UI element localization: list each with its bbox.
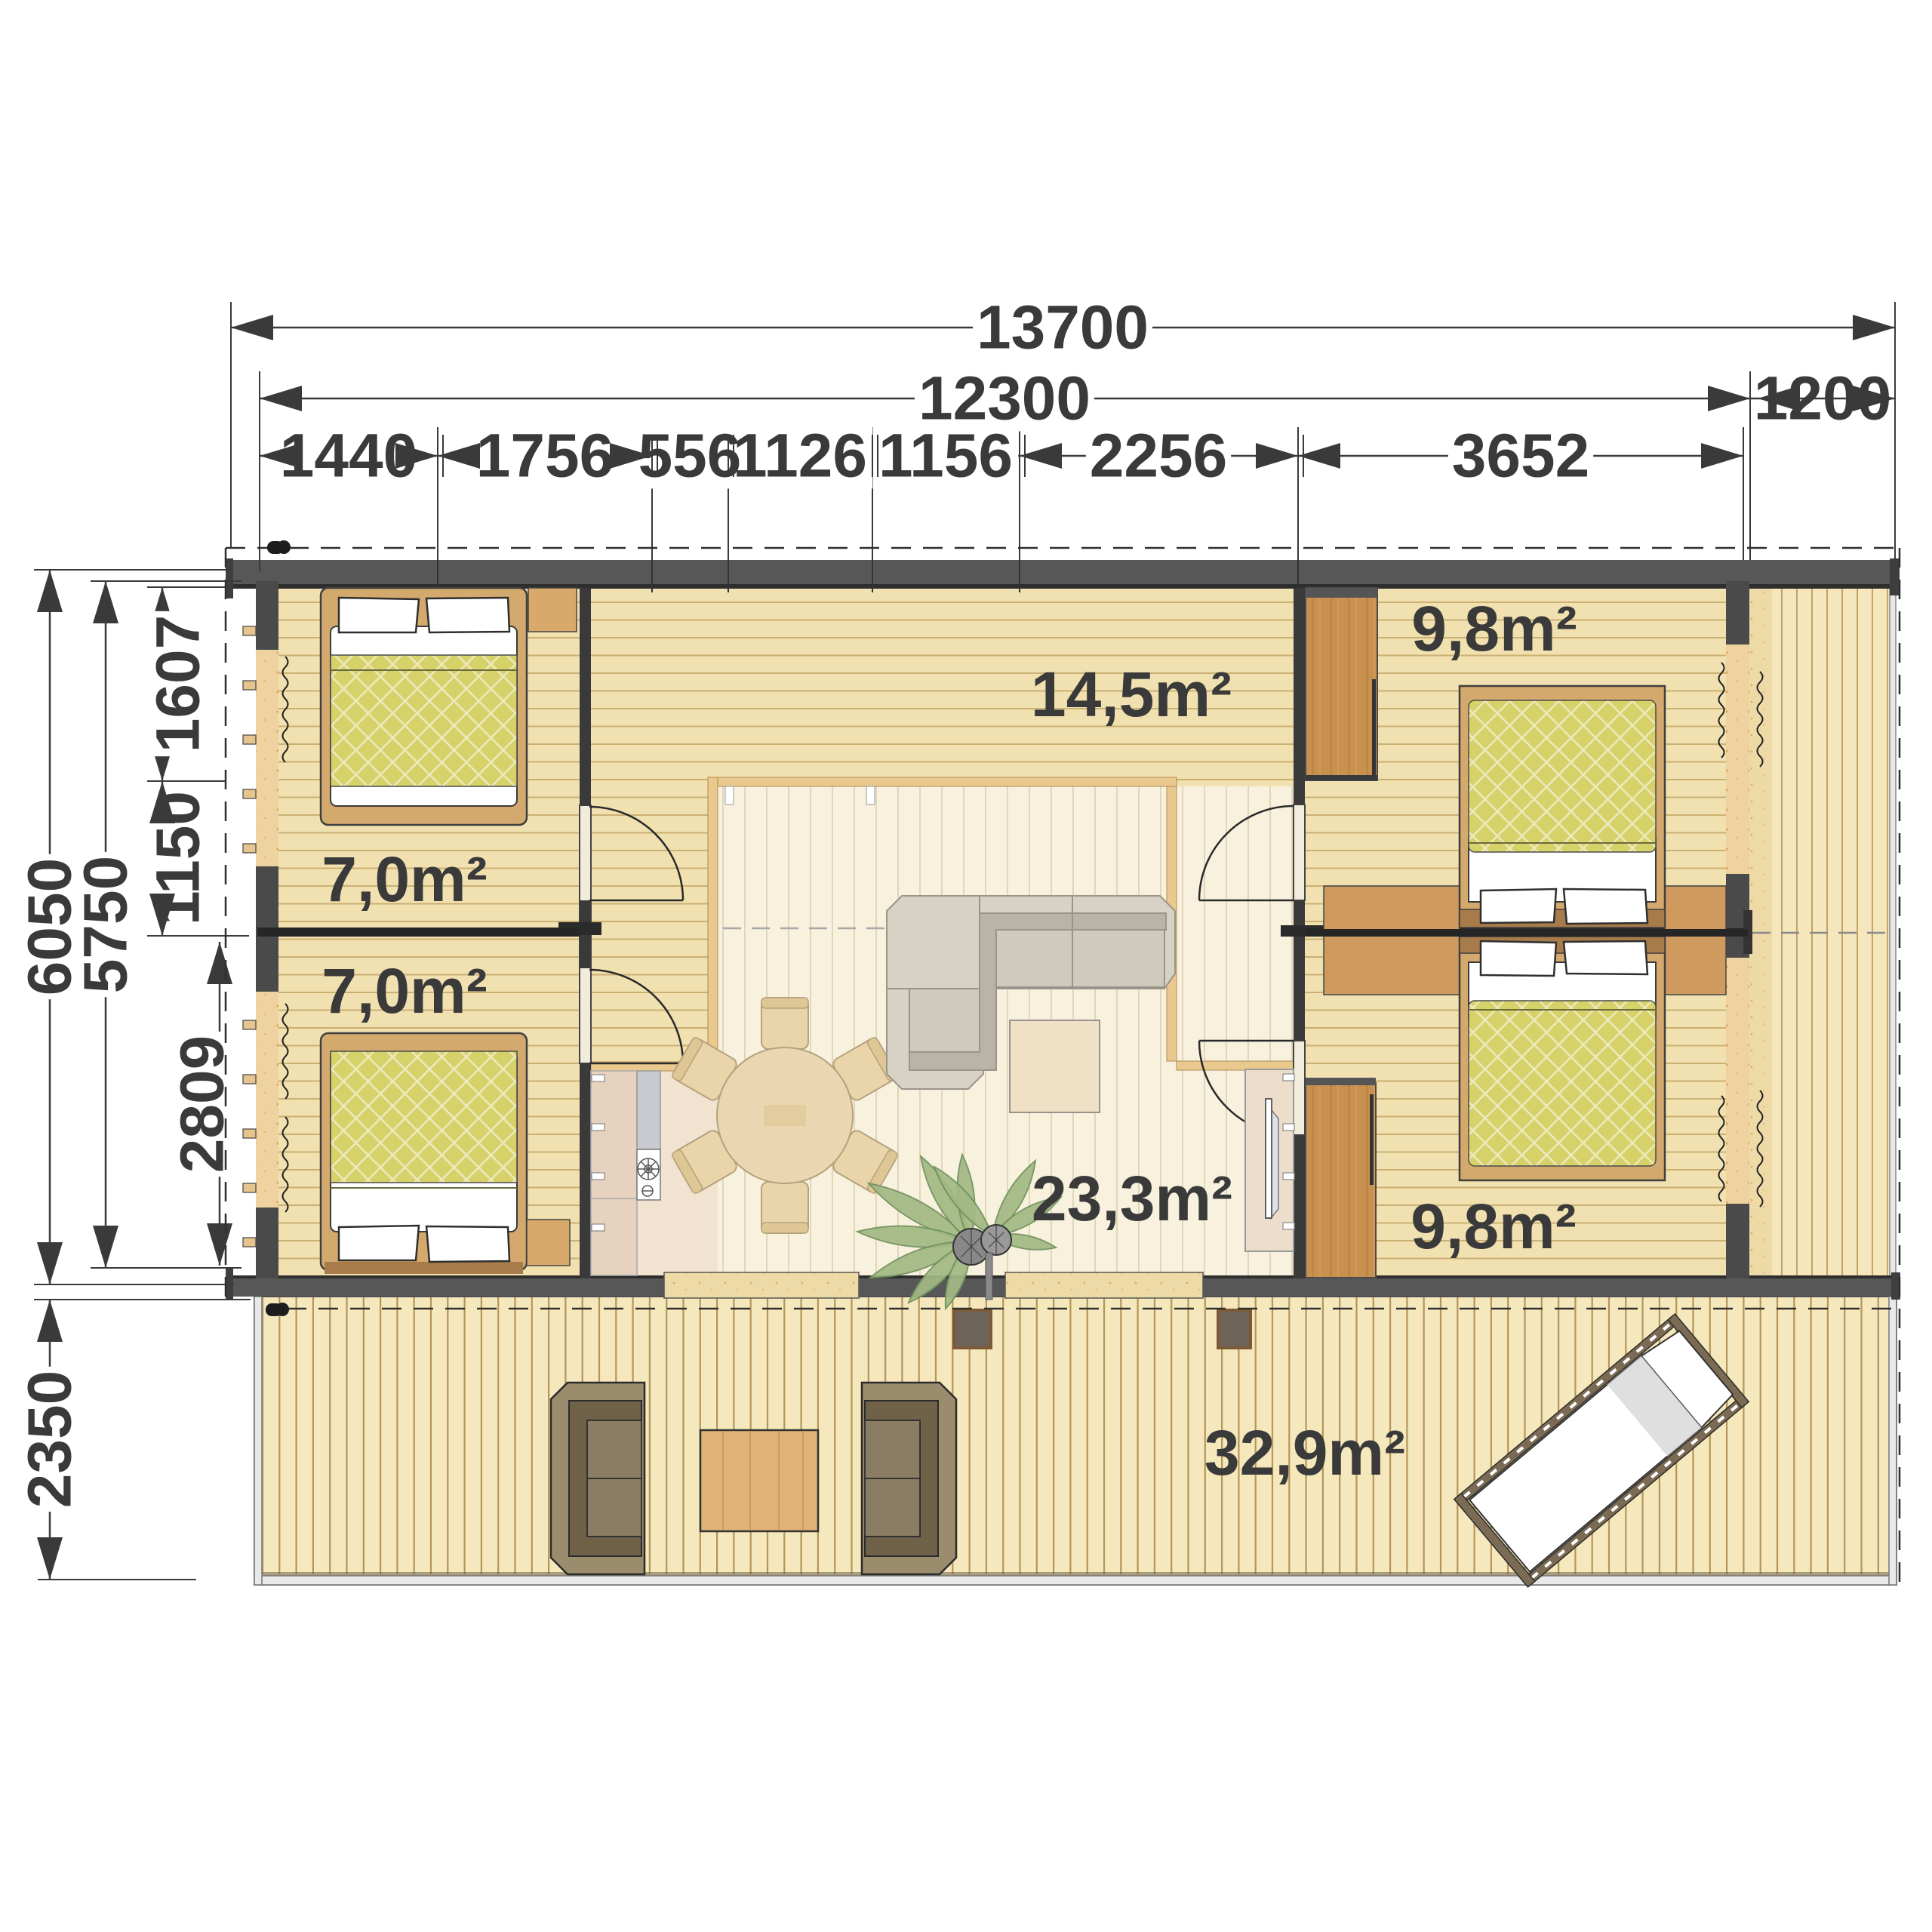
svg-text:1156: 1156 bbox=[878, 422, 1013, 491]
svg-text:1440: 1440 bbox=[280, 422, 417, 491]
svg-text:32,9m²: 32,9m² bbox=[1204, 1417, 1405, 1488]
svg-text:2350: 2350 bbox=[16, 1371, 85, 1508]
svg-text:9,8m²: 9,8m² bbox=[1411, 593, 1577, 664]
svg-text:1607: 1607 bbox=[144, 615, 213, 752]
svg-text:3652: 3652 bbox=[1452, 422, 1589, 491]
svg-text:9,8m²: 9,8m² bbox=[1411, 1191, 1576, 1262]
svg-text:14,5m²: 14,5m² bbox=[1031, 659, 1232, 730]
svg-text:1126: 1126 bbox=[733, 422, 867, 491]
svg-text:1756: 1756 bbox=[476, 422, 614, 491]
svg-text:556: 556 bbox=[638, 422, 742, 491]
svg-text:7,0m²: 7,0m² bbox=[321, 844, 487, 915]
svg-text:5750: 5750 bbox=[72, 856, 140, 993]
svg-text:7,0m²: 7,0m² bbox=[321, 955, 487, 1026]
svg-text:2256: 2256 bbox=[1090, 422, 1227, 491]
svg-text:13700: 13700 bbox=[977, 294, 1149, 362]
svg-text:23,3m²: 23,3m² bbox=[1032, 1163, 1232, 1234]
